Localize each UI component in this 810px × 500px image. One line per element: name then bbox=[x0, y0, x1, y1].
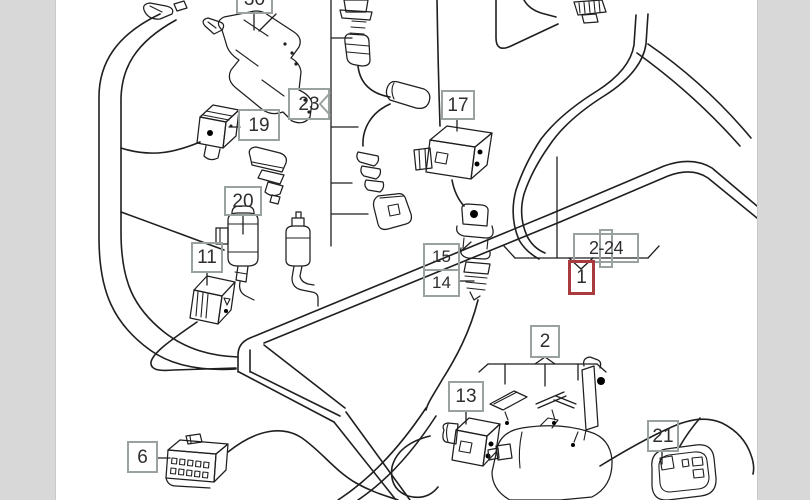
callout-15-14-group: 15 14 bbox=[423, 243, 460, 297]
callout-20[interactable]: 20 bbox=[224, 186, 262, 216]
top-connector-drawing bbox=[574, 0, 606, 23]
callout-17[interactable]: 17 bbox=[441, 90, 475, 120]
callout-6-label: 6 bbox=[137, 448, 148, 467]
callout-13[interactable]: 13 bbox=[448, 381, 484, 412]
callout-14[interactable]: 14 bbox=[423, 271, 460, 297]
left-gutter bbox=[0, 0, 56, 500]
callout-19-label: 19 bbox=[248, 116, 269, 135]
valve-drawing bbox=[286, 212, 318, 306]
bracket-lines bbox=[331, 0, 659, 386]
sensor-13-drawing bbox=[443, 418, 500, 466]
connector-19-drawing bbox=[197, 105, 239, 160]
callout-19[interactable]: 19 bbox=[238, 109, 280, 141]
foglamp-drawing bbox=[488, 418, 612, 500]
clip-part-drawing bbox=[144, 1, 187, 19]
callout-1-highlighted[interactable]: 1 bbox=[568, 260, 595, 295]
callout-21-label: 21 bbox=[652, 427, 673, 446]
callout-23-label: 23 bbox=[298, 95, 319, 114]
callout-11-label: 11 bbox=[197, 248, 217, 267]
connector-6-drawing bbox=[166, 434, 228, 488]
parts-diagram-canvas: 30 19 23 17 20 11 15 14 2-24 1 2 13 6 21 bbox=[0, 0, 810, 500]
callout-15-label: 15 bbox=[432, 247, 451, 267]
right-gutter bbox=[757, 0, 810, 500]
callout-6[interactable]: 6 bbox=[127, 441, 158, 473]
callout-17-label: 17 bbox=[447, 96, 468, 115]
connector-11-drawing bbox=[190, 276, 235, 324]
callout-23[interactable]: 23 bbox=[288, 88, 330, 120]
callout-30[interactable]: 30 bbox=[236, 0, 273, 14]
callout-15[interactable]: 15 bbox=[423, 243, 460, 271]
callout-21[interactable]: 21 bbox=[647, 420, 679, 452]
cable-23-drawing bbox=[340, 0, 430, 229]
callout-14-label: 14 bbox=[432, 273, 451, 293]
callout-30-label: 30 bbox=[244, 0, 265, 9]
harness-line-art bbox=[0, 0, 810, 500]
callout-11[interactable]: 11 bbox=[191, 242, 223, 273]
connector-17-drawing bbox=[414, 126, 492, 179]
callout-2-24[interactable]: 2-24 bbox=[573, 233, 639, 263]
callout-1-label: 1 bbox=[576, 268, 587, 287]
callout-2-label: 2 bbox=[540, 332, 551, 351]
callout-20-label: 20 bbox=[232, 192, 253, 211]
callout-2[interactable]: 2 bbox=[530, 325, 560, 358]
callout-13-label: 13 bbox=[455, 387, 476, 406]
callout-2-24-label: 2-24 bbox=[589, 239, 623, 257]
